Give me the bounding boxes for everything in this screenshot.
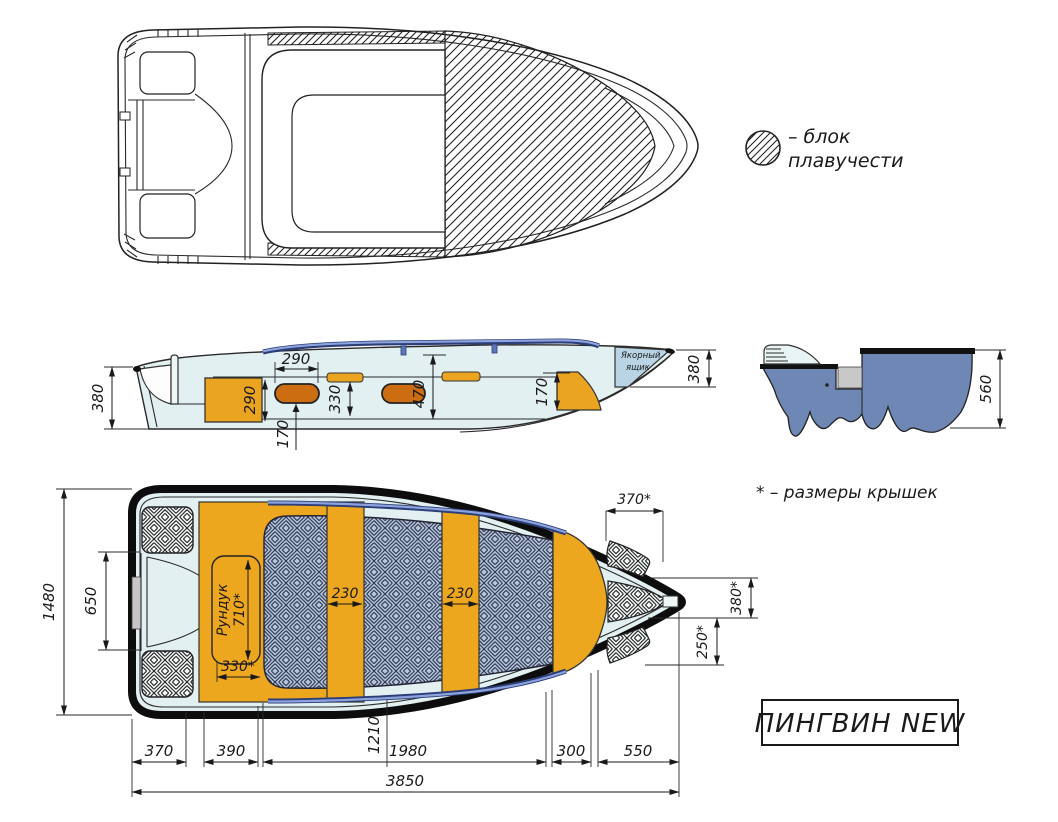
thwart-top-2 <box>442 372 480 381</box>
thwart-1 <box>327 502 364 702</box>
drain-dot <box>825 383 829 387</box>
dim-transom-width: 650 <box>82 587 100 616</box>
plan-view: 1480 650 Рундук 710* 330* 230 230 370* 3… <box>40 489 758 797</box>
technical-drawing: – блок плавучести Якорный ящик <box>0 0 1058 822</box>
flotation-swatch-icon <box>746 131 780 165</box>
stern-panel-top <box>140 52 195 94</box>
title-block: ПИНГВИН NEW <box>755 700 966 745</box>
dim-side-seat-clearance: 170 <box>274 420 292 449</box>
dim-bow-hatch-height: 380* <box>729 581 745 615</box>
dim-side-bow-locker-height: 170 <box>533 378 551 407</box>
legend-text-line2: плавучести <box>788 150 903 172</box>
cockpit-inner <box>292 95 445 232</box>
dim-side-locker-height: 290 <box>241 386 259 415</box>
section-view: 560 <box>760 345 1006 436</box>
dim-chain-370: 370 <box>145 742 174 760</box>
dim-side-transom-height: 380 <box>89 384 107 413</box>
legend-text-line1: – блок <box>788 126 851 148</box>
flotation-bow-block <box>445 31 655 257</box>
plan-motor-pad <box>132 577 141 629</box>
dim-bow-hatch-depth: 250* <box>695 625 711 659</box>
side-view: Якорный ящик 380 290 290 170 <box>89 340 716 450</box>
dim-locker-label: Рундук <box>215 583 231 636</box>
transom-fitting <box>120 112 130 120</box>
model-name: ПИНГВИН NEW <box>755 709 966 739</box>
anchor-roller <box>663 596 678 607</box>
dim-section-depth: 560 <box>977 375 995 404</box>
anchor-box-label-2: ящик <box>626 363 651 373</box>
top-view <box>118 27 698 265</box>
anchor-box-label-1: Якорный <box>620 351 661 361</box>
section-gunwale-left <box>760 364 838 369</box>
dim-bow-hatch-width: 370* <box>617 492 651 508</box>
covers-note: * – размеры крышек <box>756 483 938 503</box>
seat-cushion-1 <box>275 384 319 403</box>
dim-chain-300: 300 <box>557 742 586 760</box>
flotation-corner-bottom <box>142 651 193 697</box>
dim-thwart2: 230 <box>447 586 474 602</box>
dim-chain-550: 550 <box>624 742 653 760</box>
thwart-top-1 <box>327 373 363 382</box>
flotation-corner-top <box>142 507 193 553</box>
dim-side-cockpit-depth: 470 <box>410 380 428 409</box>
dim-chain-390: 390 <box>217 742 246 760</box>
stern-panel-bottom <box>140 194 195 238</box>
deck-floor <box>264 516 553 689</box>
dim-beam: 1480 <box>40 583 58 621</box>
dim-chain-1210: 1210 <box>365 716 383 754</box>
stern-light-icon <box>133 366 141 372</box>
dim-locker-length: 710* <box>232 593 248 627</box>
dim-side-seat-width: 290 <box>282 350 311 368</box>
dim-side-gunwale-floor: 330 <box>326 385 344 414</box>
transom-fitting <box>120 168 130 176</box>
dim-locker-width: 330* <box>221 659 255 675</box>
motor-pad <box>838 367 862 388</box>
thwart-2 <box>442 509 479 695</box>
dim-overall-length: 3850 <box>386 772 424 790</box>
well-pillar <box>171 355 178 404</box>
bow-seat <box>553 529 607 675</box>
flotation-strip-top <box>268 31 445 45</box>
legend-flotation: – блок плавучести <box>746 126 903 172</box>
dim-side-bow-height: 380 <box>685 355 703 384</box>
section-gunwale-top <box>860 348 975 354</box>
dim-chain-1980: 1980 <box>389 742 427 760</box>
boat-drawing-sheet: – блок плавучести Якорный ящик <box>0 0 1058 822</box>
dim-thwart1: 230 <box>332 586 359 602</box>
